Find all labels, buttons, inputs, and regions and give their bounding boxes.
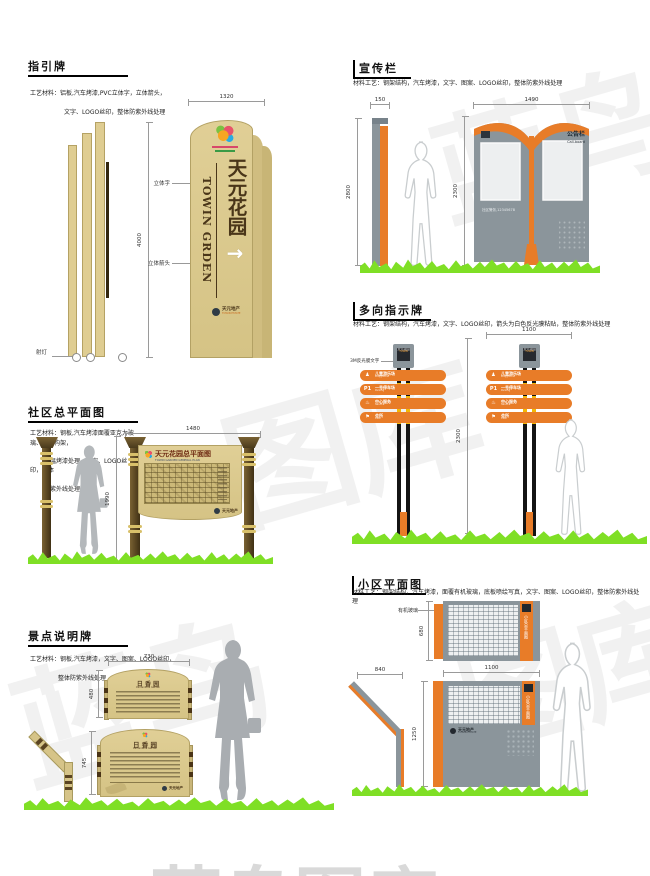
dimension-height: 1990 (116, 436, 117, 562)
totem-cn-text: 天元花园 (221, 158, 250, 248)
blade-en: Parking (375, 390, 395, 393)
flower-logo-text (215, 150, 235, 152)
column-ring (40, 457, 53, 460)
desc-line: 工艺材料：铝板,汽车烤漆,PVC立体字，立体箭头， (30, 90, 166, 97)
brand-logo-text: 天元地产 TOWIN ESTATE (222, 308, 241, 316)
section-desc: 材料工艺：钢架结构，汽车烤漆，文字、图案、LOGO丝印，整体防紫外线处理 (353, 79, 633, 88)
blade-playground: ♟ 儿童游乐场Playground (360, 370, 446, 381)
board-band-text: 小区总平面图 (525, 695, 531, 725)
section-title-scenic-sign: 景点说明牌 (28, 628, 128, 647)
playground-icon: ♟ (489, 370, 498, 381)
plan-subtitle: TOWIN GARDEN GENERAL PLAN (155, 458, 200, 462)
spotlight-label: 射灯 (36, 348, 47, 356)
blade-parking: P1 一号停车场Parking (486, 384, 572, 395)
leader-line (52, 356, 72, 357)
spotlight-circle (72, 353, 81, 362)
section-title-guide-sign: 指引牌 (28, 58, 128, 77)
label-3d-arrow: 立体箭头 (124, 259, 170, 267)
brand-logo-icon (162, 786, 167, 791)
board-bracket (189, 752, 193, 757)
board-body-text (116, 691, 180, 714)
blade-en: Service (501, 404, 517, 407)
dimension-width: 1100 (443, 672, 540, 673)
playground-icon: ♟ (363, 370, 372, 381)
dimension-width: 1320 (188, 101, 265, 102)
dimension-width: 1480 (125, 433, 261, 434)
human-silhouette (398, 140, 440, 278)
stand-side-shaft (64, 762, 73, 802)
board-title-en: Osmanthus Garden (117, 747, 173, 750)
column-ring (40, 462, 53, 465)
section-desc: 工艺材料：铝板,汽车烤漆,PVC立体字，立体箭头， 文字、LOGO丝印，整体防紫… (30, 80, 166, 117)
dimension-height: 2800 (357, 118, 358, 266)
blade-en: Playground (375, 376, 395, 379)
board-bracket (104, 708, 108, 713)
stand-band (65, 787, 72, 790)
section-title-publicity-board: 宣传栏 (353, 60, 411, 79)
flower-logo-icon (144, 450, 153, 459)
column-ring (242, 458, 256, 461)
human-silhouette (545, 641, 595, 806)
panel-band-text: 小区总平面图 (523, 615, 529, 659)
column-ring (40, 505, 53, 508)
design-sheet: 蓝鸟 图库 蓝鸟 图库 蓝鸟图库 指引牌 工艺材料：铝板,汽车烤漆,PVC立体字… (0, 0, 650, 876)
dimension-width: 730 (108, 661, 190, 662)
dimension-height: 680 (428, 601, 429, 661)
blade-parking: P1 一号停车场Parking (360, 384, 446, 395)
board-side-view-accent (380, 126, 388, 266)
totem-back-panel (262, 146, 272, 358)
label-3d-text: 立体字 (130, 179, 170, 187)
blade-en: Parking (501, 390, 521, 393)
board-title-cn: 公告栏 (567, 130, 585, 138)
column-ring (242, 530, 256, 533)
blade-en: Club (501, 418, 509, 421)
column-ring (242, 453, 256, 456)
brand-en: TOWIN ESTATE (222, 313, 241, 316)
dimension-height: 2300 (467, 338, 468, 534)
board-bracket (104, 698, 108, 703)
stand-band (65, 781, 72, 784)
spotlight-circle (86, 353, 95, 362)
flower-logo-icon (142, 732, 148, 738)
brand-logo-icon (522, 604, 531, 612)
parking-icon: P1 (363, 384, 372, 395)
notice-text: 社区警务,12345678 (482, 207, 515, 212)
blade-service: ♨ 中心服务Service (486, 398, 572, 409)
header-en: TOWIN (523, 351, 536, 354)
watermark-bottom: 蓝鸟图库 (150, 842, 438, 876)
guide-pole (95, 122, 105, 357)
dot-pattern (506, 729, 534, 756)
brand-logo-text: 天元地产 TOWIN ESTATE (458, 728, 477, 735)
club-icon: ⚑ (363, 412, 372, 423)
human-silhouette (206, 638, 262, 806)
dimension-width: 840 (357, 674, 403, 675)
service-icon: ♨ (489, 398, 498, 409)
reflective-film-label: 3M反光膜文字 (350, 358, 379, 364)
panel-accent-strip (434, 604, 443, 659)
stand-accent (348, 685, 400, 739)
board-bracket (188, 698, 192, 703)
flower-logo-text (212, 146, 238, 148)
plan-panel-map (448, 605, 518, 656)
column-ring (40, 452, 53, 455)
dimension-height: 745 (91, 731, 92, 795)
parking-icon: P1 (489, 384, 498, 395)
acrylic-label: 有机玻璃 (398, 607, 418, 614)
dimension-width: 1490 (473, 104, 590, 105)
board-bracket (188, 708, 192, 713)
board-title-en: Call-board (567, 140, 585, 144)
totem-rule (216, 163, 217, 298)
board-side-cap (372, 118, 388, 124)
board-bracket (97, 752, 101, 757)
board-bracket (104, 688, 108, 693)
blade-en: Service (375, 404, 391, 407)
section-title-directional-sign: 多向指示牌 (353, 302, 431, 321)
stand-accent (401, 729, 404, 787)
pole-base (526, 512, 533, 536)
totem-en-text: TOWIN GRDEN (201, 174, 213, 286)
pole-base (400, 512, 407, 536)
dot-pattern (559, 220, 585, 250)
header-en: TOWIN (397, 351, 410, 354)
brand-logo-text: 天元地产 (222, 508, 238, 514)
dimension-height: 1250 (423, 681, 424, 787)
stand-side-shaft (396, 729, 404, 787)
dimension-width: 150 (370, 104, 390, 105)
column-ring (242, 463, 256, 466)
dimension-height: 4000 (148, 122, 149, 358)
sign-header-logo: 天元花园 TOWIN (397, 348, 410, 361)
dimension-width: 1100 (486, 334, 572, 335)
column-ring (40, 500, 53, 503)
club-icon: ⚑ (489, 412, 498, 423)
board-bracket (97, 762, 101, 767)
brand-logo-icon (524, 684, 533, 692)
brand-logo-icon (481, 131, 490, 138)
desc-line: 文字、LOGO丝印，整体防紫外线处理 (64, 109, 165, 116)
board-body-text (110, 752, 180, 778)
stand-band (40, 743, 48, 751)
guide-pole (82, 133, 92, 357)
brand-logo-icon (212, 308, 220, 316)
sign-header-logo: 天元花园 TOWIN (523, 348, 536, 361)
brand-en: TOWIN ESTATE (458, 732, 477, 735)
board-side-view (372, 120, 380, 266)
column-ring (128, 525, 142, 528)
human-silhouette (550, 418, 588, 546)
blade-club: ⚑ 会所Club (360, 412, 446, 423)
blade-en: Club (375, 418, 383, 421)
arrow-icon: → (222, 241, 248, 265)
grass (28, 550, 273, 564)
board-bracket (97, 772, 101, 777)
pole-accent-bar (106, 162, 109, 298)
column-ring (128, 530, 142, 533)
brand-logo-icon (214, 508, 220, 514)
plan-legend (218, 467, 227, 500)
column-ring (242, 525, 256, 528)
blade-service: ♨ 中心服务Service (360, 398, 446, 409)
board-bracket (189, 762, 193, 767)
guide-pole (68, 145, 77, 357)
dimension-height: 2300 (464, 116, 465, 266)
board-bracket (189, 772, 193, 777)
flower-logo-icon (145, 672, 151, 678)
leader-line (381, 361, 393, 362)
brand-logo-icon (450, 728, 456, 734)
publicity-board-front: 公告栏 Call-board 社区警务,12345678 (473, 116, 590, 266)
stand-band (65, 775, 72, 778)
spotlight-circle (118, 353, 127, 362)
blade-playground: ♟ 儿童游乐场Playground (486, 370, 572, 381)
service-icon: ♨ (363, 398, 372, 409)
dimension-height: 480 (98, 670, 99, 718)
flower-logo-icon (214, 124, 236, 144)
board-bracket (188, 688, 192, 693)
board-accent-strip (433, 681, 443, 787)
blade-en: Playground (501, 376, 521, 379)
brand-logo-text: 天元地产 (169, 786, 183, 791)
board-title-en: Osmanthus Garden (120, 686, 176, 689)
plan-board-map (448, 686, 520, 724)
